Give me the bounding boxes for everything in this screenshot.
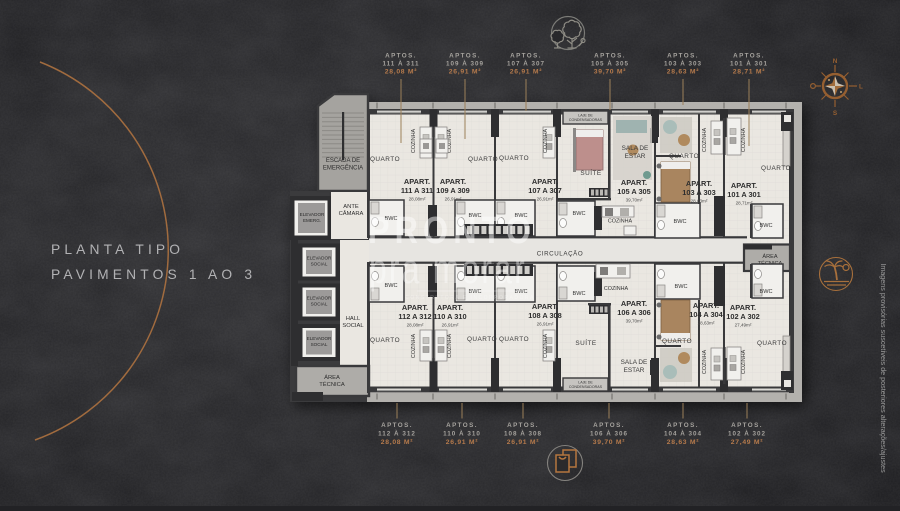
svg-text:26,91 M²: 26,91 M² — [510, 69, 542, 76]
svg-text:108 A 308: 108 A 308 — [528, 311, 562, 320]
svg-text:PLANTA TIPO: PLANTA TIPO — [51, 242, 184, 257]
svg-text:103 A 303: 103 A 303 — [682, 188, 716, 197]
svg-text:28,08m²: 28,08m² — [407, 323, 424, 328]
svg-text:28,08m²: 28,08m² — [409, 197, 426, 202]
svg-text:APART.: APART. — [621, 299, 647, 308]
svg-text:COZINHA: COZINHA — [608, 219, 633, 225]
svg-text:112 A 312: 112 A 312 — [398, 312, 431, 321]
svg-text:QUARTO: QUARTO — [669, 153, 699, 160]
svg-text:APART.: APART. — [532, 177, 558, 186]
svg-text:26,91m²: 26,91m² — [442, 323, 459, 328]
svg-text:APART.: APART. — [402, 303, 428, 312]
svg-text:APART.: APART. — [693, 301, 719, 310]
svg-text:SALA DE: SALA DE — [622, 145, 649, 152]
svg-text:105 À 305: 105 À 305 — [591, 59, 629, 68]
svg-text:SUÍTE: SUÍTE — [575, 338, 596, 347]
svg-text:39,70 M²: 39,70 M² — [594, 69, 626, 76]
svg-text:pra morar: pra morar — [369, 245, 527, 292]
svg-text:BWC: BWC — [674, 284, 687, 290]
svg-text:28,63 M²: 28,63 M² — [667, 439, 699, 446]
svg-text:QUARTO: QUARTO — [468, 156, 498, 163]
svg-text:26,91 M²: 26,91 M² — [446, 439, 478, 446]
svg-text:APART.: APART. — [532, 302, 558, 311]
svg-text:SALA DE: SALA DE — [621, 359, 648, 366]
svg-text:ESCADA DE: ESCADA DE — [326, 158, 360, 164]
svg-text:APTOS.: APTOS. — [449, 53, 481, 60]
svg-text:107 À 307: 107 À 307 — [507, 59, 545, 68]
svg-text:ELEVADOR: ELEVADOR — [307, 256, 332, 261]
svg-text:APTOS.: APTOS. — [381, 422, 413, 429]
svg-text:ELEVADOR: ELEVADOR — [307, 296, 332, 301]
svg-text:CONDENSADORAS: CONDENSADORAS — [569, 385, 603, 389]
svg-text:APTOS.: APTOS. — [731, 422, 763, 429]
svg-text:26,91m²: 26,91m² — [537, 322, 554, 327]
svg-text:39,70m²: 39,70m² — [626, 198, 643, 203]
svg-text:S: S — [833, 110, 838, 117]
svg-text:COZINHA: COZINHA — [411, 333, 417, 358]
svg-text:BWC: BWC — [673, 219, 686, 225]
svg-text:SOCIAL: SOCIAL — [342, 323, 364, 329]
svg-text:28,63m²: 28,63m² — [698, 321, 715, 326]
svg-text:26,91 M²: 26,91 M² — [507, 439, 539, 446]
svg-text:39,70 M²: 39,70 M² — [593, 439, 625, 446]
svg-text:SUÍTE: SUÍTE — [580, 168, 601, 177]
svg-text:APART.: APART. — [404, 177, 430, 186]
svg-text:27,49m²: 27,49m² — [735, 323, 752, 328]
svg-text:APTOS.: APTOS. — [667, 53, 699, 60]
svg-text:SOCIAL: SOCIAL — [311, 302, 328, 307]
svg-text:QUARTO: QUARTO — [370, 156, 400, 163]
svg-text:APART.: APART. — [731, 181, 757, 190]
svg-text:107 A 307: 107 A 307 — [528, 186, 562, 195]
svg-text:101 A 301: 101 A 301 — [727, 190, 761, 199]
svg-text:N: N — [833, 58, 838, 65]
svg-text:CIRCULAÇÃO: CIRCULAÇÃO — [537, 251, 584, 258]
svg-text:APTOS.: APTOS. — [507, 422, 539, 429]
svg-text:EMERG.: EMERG. — [303, 218, 321, 223]
svg-text:26,91 M²: 26,91 M² — [449, 69, 481, 76]
svg-text:QUARTO: QUARTO — [662, 338, 692, 345]
svg-text:CÂMARA: CÂMARA — [339, 210, 364, 217]
svg-text:QUARTO: QUARTO — [499, 336, 529, 343]
svg-text:APART.: APART. — [686, 179, 712, 188]
svg-text:APTOS.: APTOS. — [667, 422, 699, 429]
svg-text:106 À 306: 106 À 306 — [590, 429, 628, 438]
svg-text:APART.: APART. — [440, 177, 466, 186]
svg-text:108 À 308: 108 À 308 — [504, 429, 542, 438]
svg-text:110 À 310: 110 À 310 — [443, 429, 481, 438]
svg-text:APTOS.: APTOS. — [385, 53, 417, 60]
svg-text:ELEVADOR: ELEVADOR — [307, 336, 332, 341]
svg-text:109 A 309: 109 A 309 — [436, 186, 470, 195]
svg-text:101 À 301: 101 À 301 — [730, 59, 768, 68]
svg-text:BWC: BWC — [572, 291, 585, 297]
svg-text:APTOS.: APTOS. — [510, 53, 542, 60]
svg-text:ÁREA: ÁREA — [324, 374, 340, 381]
svg-text:COZINHA: COZINHA — [411, 128, 417, 153]
svg-text:SOCIAL: SOCIAL — [311, 342, 328, 347]
svg-text:APTOS.: APTOS. — [593, 422, 625, 429]
svg-text:APTOS.: APTOS. — [594, 53, 626, 60]
svg-text:LAJE DE: LAJE DE — [578, 381, 593, 385]
svg-text:L: L — [859, 84, 863, 91]
svg-text:ESTAR: ESTAR — [625, 153, 646, 160]
svg-text:COZINHA: COZINHA — [741, 127, 747, 152]
svg-text:BWC: BWC — [759, 289, 772, 295]
svg-text:27,49 M²: 27,49 M² — [731, 439, 763, 446]
svg-text:Imagens provisórias suscetívei: Imagens provisórias suscetíveis de poste… — [879, 263, 888, 473]
svg-text:QUARTO: QUARTO — [757, 340, 787, 347]
svg-text:COZINHA: COZINHA — [741, 349, 747, 374]
svg-text:APTOS.: APTOS. — [733, 53, 765, 60]
svg-text:QUARTO: QUARTO — [467, 336, 497, 343]
svg-text:APART.: APART. — [730, 303, 756, 312]
svg-text:LAJE DE: LAJE DE — [578, 114, 593, 118]
svg-text:APTOS.: APTOS. — [446, 422, 478, 429]
svg-text:BWC: BWC — [572, 211, 585, 217]
svg-text:28,63m²: 28,63m² — [691, 199, 708, 204]
svg-text:SOCIAL: SOCIAL — [311, 262, 328, 267]
svg-text:COZINHA: COZINHA — [543, 128, 549, 153]
svg-text:COZINHA: COZINHA — [543, 333, 549, 358]
svg-text:104 À 304: 104 À 304 — [664, 429, 702, 438]
svg-text:111 À 311: 111 À 311 — [382, 59, 419, 68]
svg-text:ÁREA: ÁREA — [762, 253, 778, 260]
svg-text:106 A 306: 106 A 306 — [617, 308, 651, 317]
svg-text:ESTAR: ESTAR — [624, 367, 645, 374]
svg-text:103 À 303: 103 À 303 — [664, 59, 702, 68]
svg-text:BWC: BWC — [759, 223, 772, 229]
svg-text:CONDENSADORAS: CONDENSADORAS — [569, 118, 603, 122]
svg-text:111 A 311: 111 A 311 — [401, 186, 433, 195]
svg-text:APART.: APART. — [437, 303, 463, 312]
svg-text:102 À 302: 102 À 302 — [728, 429, 766, 438]
svg-text:102 A 302: 102 A 302 — [726, 312, 760, 321]
svg-text:EMERGÊNCIA: EMERGÊNCIA — [323, 164, 363, 172]
svg-text:28,71m²: 28,71m² — [736, 201, 753, 206]
svg-text:QUARTO: QUARTO — [370, 337, 400, 344]
svg-text:CONSTRUTORA E INCORPORADORA: CONSTRUTORA E INCORPORADORA — [405, 295, 535, 301]
svg-text:QUARTO: QUARTO — [761, 165, 791, 172]
svg-text:COZINHA: COZINHA — [604, 286, 629, 292]
svg-text:COZINHA: COZINHA — [702, 127, 708, 152]
svg-text:ANTE: ANTE — [343, 204, 359, 210]
svg-text:COZINHA: COZINHA — [447, 333, 453, 358]
svg-text:ELEVADOR: ELEVADOR — [300, 212, 325, 217]
svg-text:112 À 312: 112 À 312 — [378, 429, 416, 438]
svg-text:TÉCNICA: TÉCNICA — [319, 381, 345, 388]
svg-text:109 À 309: 109 À 309 — [446, 59, 484, 68]
svg-text:28,71 M²: 28,71 M² — [733, 69, 765, 76]
svg-text:HALL: HALL — [346, 316, 361, 322]
svg-text:110 A 310: 110 A 310 — [433, 312, 466, 321]
svg-text:PAVIMENTOS 1 AO 3: PAVIMENTOS 1 AO 3 — [51, 267, 256, 282]
svg-text:QUARTO: QUARTO — [499, 155, 529, 162]
svg-text:COZINHA: COZINHA — [702, 349, 708, 374]
svg-text:104 A 304: 104 A 304 — [689, 310, 723, 319]
svg-text:28,08 M²: 28,08 M² — [385, 69, 417, 76]
svg-text:26,91m²: 26,91m² — [537, 197, 554, 202]
svg-text:39,70m²: 39,70m² — [626, 319, 643, 324]
svg-text:28,08 M²: 28,08 M² — [381, 439, 413, 446]
svg-text:26,91m²: 26,91m² — [445, 197, 462, 202]
svg-text:105 A 305: 105 A 305 — [617, 187, 651, 196]
svg-text:APART.: APART. — [621, 178, 647, 187]
svg-text:28,63 M²: 28,63 M² — [667, 69, 699, 76]
